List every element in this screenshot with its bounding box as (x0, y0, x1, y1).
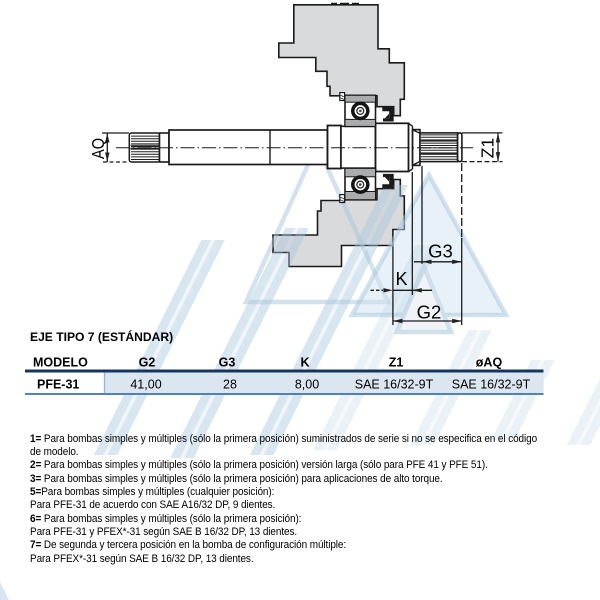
svg-text:G3: G3 (219, 356, 236, 370)
svg-text:G3: G3 (428, 241, 453, 262)
svg-text:EJE TIPO 7 (ESTÁNDAR): EJE TIPO 7 (ESTÁNDAR) (30, 329, 173, 344)
svg-text:K: K (395, 269, 407, 289)
svg-text:8,00: 8,00 (295, 378, 319, 392)
svg-text:MODELO: MODELO (33, 356, 88, 370)
svg-text:Z1: Z1 (389, 356, 404, 370)
svg-text:Z1: Z1 (478, 138, 498, 159)
svg-text:G2: G2 (417, 302, 442, 323)
svg-text:AQ: AQ (88, 138, 108, 159)
svg-text:PFE-31: PFE-31 (37, 378, 79, 392)
svg-text:øAQ: øAQ (476, 356, 503, 370)
svg-text:41,00: 41,00 (130, 378, 161, 392)
svg-text:G2: G2 (139, 356, 156, 370)
svg-text:SAE 16/32-9T: SAE 16/32-9T (355, 378, 434, 392)
svg-text:SAE 16/32-9T: SAE 16/32-9T (452, 378, 531, 392)
svg-text:28: 28 (223, 378, 237, 392)
svg-text:K: K (300, 356, 309, 370)
